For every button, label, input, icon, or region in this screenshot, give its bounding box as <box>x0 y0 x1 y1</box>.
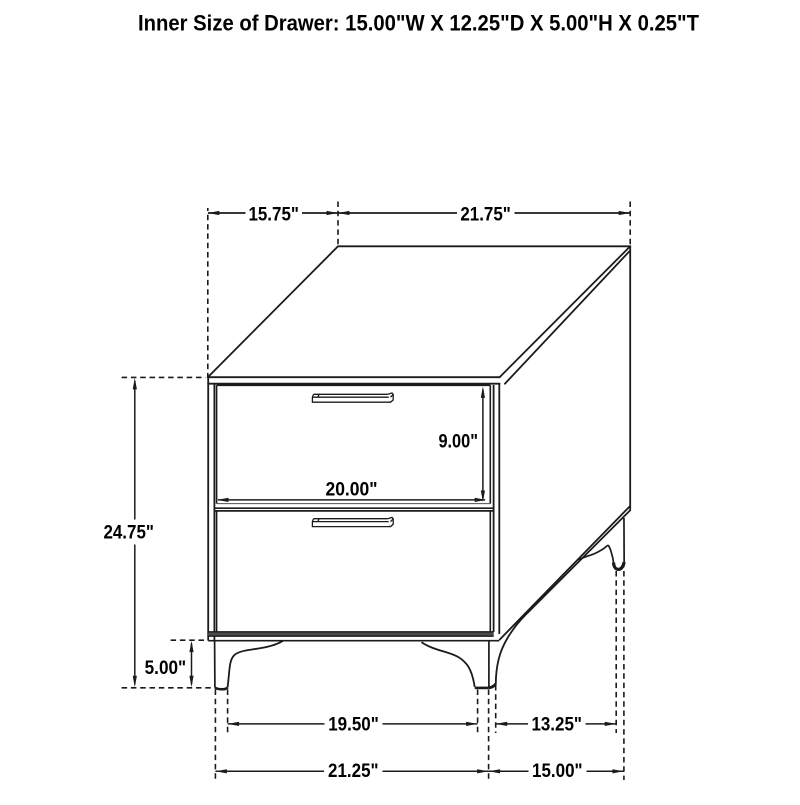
svg-text:13.25": 13.25" <box>531 713 582 735</box>
svg-text:19.50": 19.50" <box>328 713 379 735</box>
svg-text:15.75": 15.75" <box>248 203 299 225</box>
svg-text:9.00": 9.00" <box>438 431 478 453</box>
svg-text:20.00": 20.00" <box>326 478 378 500</box>
svg-text:21.75": 21.75" <box>460 203 511 225</box>
svg-text:5.00": 5.00" <box>145 657 187 679</box>
svg-text:21.25": 21.25" <box>328 760 379 782</box>
svg-text:24.75": 24.75" <box>103 522 154 544</box>
svg-text:15.00": 15.00" <box>532 760 583 782</box>
svg-text:Inner Size of Drawer: 15.00"W: Inner Size of Drawer: 15.00"W X 12.25"D … <box>138 11 699 36</box>
